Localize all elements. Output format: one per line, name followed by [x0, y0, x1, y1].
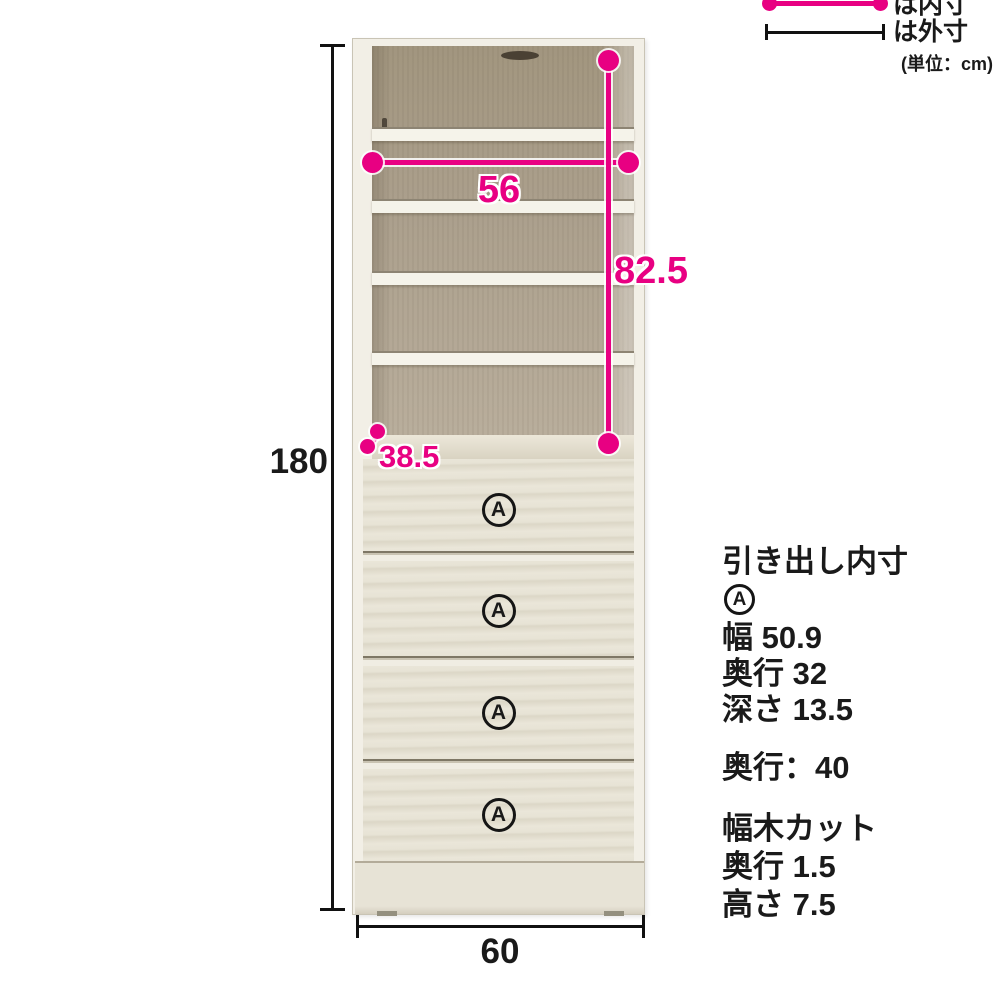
- outer-width-dim-line: [357, 925, 645, 928]
- drawer-label: A: [491, 803, 506, 827]
- drawer-gap: [363, 656, 634, 666]
- drawer-label-badge: A: [482, 798, 516, 832]
- legend-unit-label: (単位：cm): [901, 50, 993, 76]
- drawer-gap: [363, 551, 634, 561]
- drawer-label-badge: A: [482, 493, 516, 527]
- spec-marker: A: [733, 589, 747, 611]
- shelf: [372, 271, 634, 285]
- dim-tick-icon: [320, 908, 345, 911]
- outer-height-dim-line: [331, 45, 334, 911]
- dim-tick-icon: [320, 44, 345, 47]
- pink-endpoint-dot-icon: [762, 0, 777, 11]
- dim-tick-icon: [882, 24, 885, 40]
- drawer-label-badge: A: [482, 696, 516, 730]
- drawer-label: A: [491, 599, 506, 623]
- legend-outer-label: は外寸: [893, 20, 968, 45]
- spec-baseboard-depth: 奥行 1.5: [722, 850, 836, 884]
- legend-inner-label: は内寸: [893, 0, 968, 18]
- legend-outer-dim-line-sample: [765, 31, 885, 34]
- spec-baseboard-title: 幅木カット: [722, 812, 877, 846]
- spec-line-depth: 奥行 32: [722, 657, 827, 691]
- dim-tick-icon: [642, 915, 645, 938]
- legend-inner-dim-line-sample: [765, 1, 885, 6]
- cabinet-foot: [377, 911, 397, 916]
- shelf: [372, 127, 634, 141]
- spec-title: 引き出し内寸: [722, 545, 908, 579]
- spec-overall-depth: 奥行：40: [722, 751, 849, 785]
- outer-height-label: 180: [248, 444, 328, 479]
- open-shelf-interior: [372, 46, 634, 435]
- spec-line-inner-depth: 深さ 13.5: [722, 693, 853, 727]
- pink-endpoint-dot-icon: [598, 433, 619, 454]
- drawer-label: A: [491, 498, 506, 522]
- spec-baseboard-height: 高さ 7.5: [722, 888, 836, 922]
- drawer-label-badge: A: [482, 594, 516, 628]
- pink-endpoint-dot-icon: [598, 50, 619, 71]
- spec-line-width: 幅 50.9: [722, 621, 822, 655]
- pink-endpoint-dot-icon: [362, 152, 383, 173]
- cord-slot: [501, 51, 539, 60]
- cabinet-foot: [604, 911, 624, 916]
- shelf: [372, 351, 634, 365]
- inner-height-label: 82.5: [614, 252, 688, 290]
- inner-width-dim-line: [372, 160, 628, 165]
- dim-tick-icon: [356, 915, 359, 938]
- outer-width-label: 60: [450, 934, 550, 969]
- inner-height-dim-line: [606, 59, 611, 443]
- spec-marker-badge: A: [724, 584, 755, 615]
- drawer-gap: [363, 759, 634, 769]
- pink-endpoint-dot-icon: [873, 0, 888, 11]
- cabinet-base-kickboard: [355, 861, 644, 914]
- pink-endpoint-dot-icon: [370, 424, 385, 439]
- inner-depth-label: 38.5: [379, 441, 439, 472]
- drawer-4: A: [363, 769, 634, 861]
- furniture-dimension-diagram: は内寸 は外寸 (単位：cm) A A A A: [0, 0, 1000, 1000]
- inner-width-label: 56: [449, 171, 549, 209]
- pink-endpoint-dot-icon: [360, 439, 375, 454]
- drawer-2: A: [363, 561, 634, 656]
- pink-endpoint-dot-icon: [618, 152, 639, 173]
- dim-tick-icon: [765, 24, 768, 40]
- drawer-3: A: [363, 666, 634, 759]
- drawer-label: A: [491, 701, 506, 725]
